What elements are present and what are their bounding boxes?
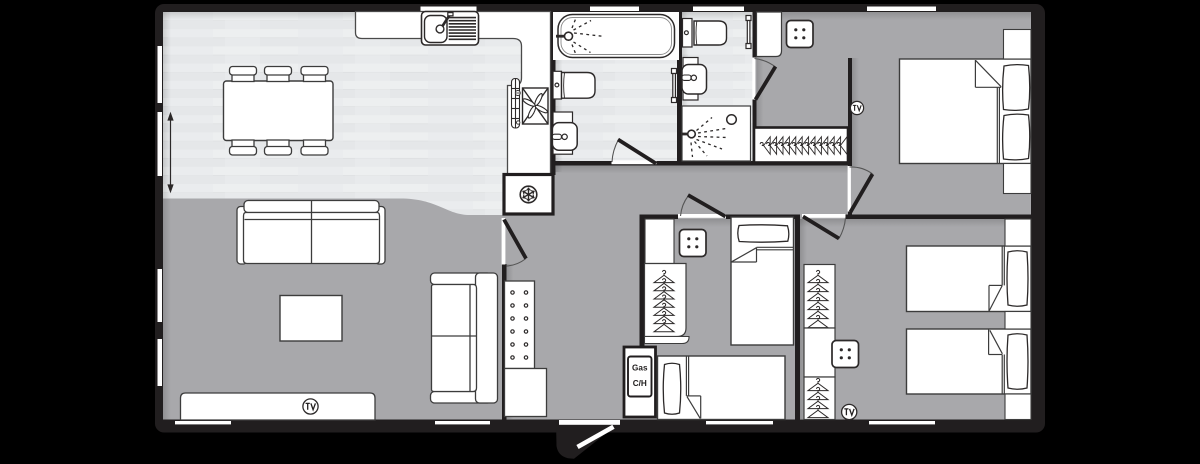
svg-text:C/H: C/H	[633, 379, 647, 388]
svg-text:Gas: Gas	[632, 364, 648, 373]
